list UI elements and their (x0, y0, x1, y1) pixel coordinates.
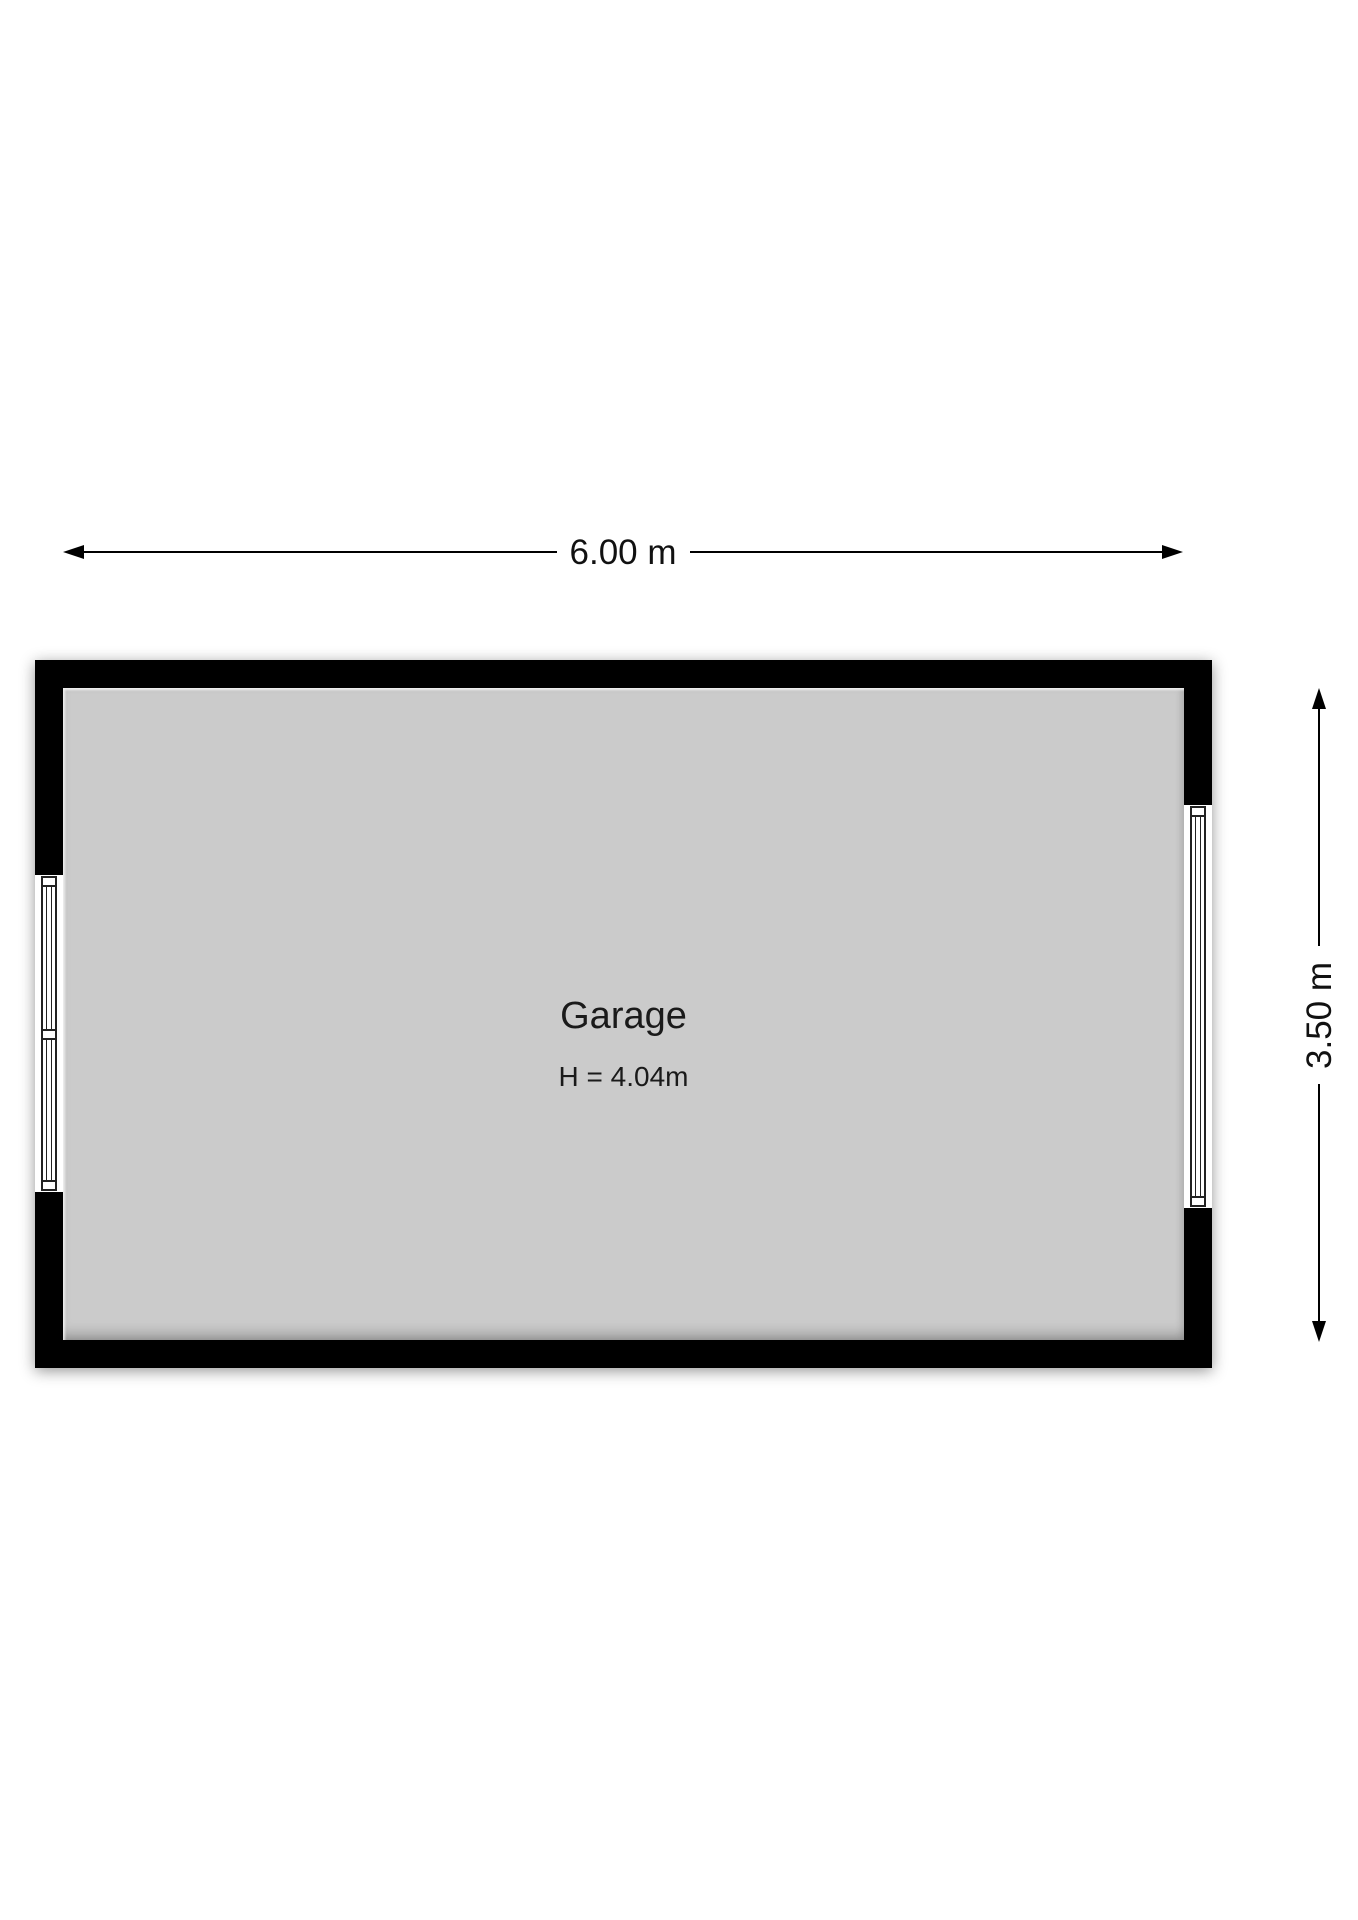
window-frame-box (41, 876, 57, 887)
dimension-line-segment (84, 551, 557, 553)
arrow-right-icon (1162, 545, 1183, 559)
width-dimension: 6.00 m (63, 536, 1183, 568)
arrow-up-icon (1312, 688, 1326, 709)
arrow-left-icon (63, 545, 84, 559)
right-window (1184, 805, 1212, 1208)
height-dimension: 3.50 m (1303, 688, 1335, 1342)
room-label-block: Garage H = 4.04m (63, 994, 1184, 1094)
window-frame-box (1190, 1196, 1206, 1207)
window-frame-box (41, 1180, 57, 1191)
left-window (35, 875, 63, 1192)
window-frame (41, 875, 57, 1192)
width-dimension-label: 6.00 m (557, 535, 690, 570)
window-glass-lines (1190, 808, 1206, 1205)
height-dimension-label: 3.50 m (1302, 962, 1337, 1069)
arrow-down-icon (1312, 1321, 1326, 1342)
window-frame (1190, 805, 1206, 1208)
room-name-label: Garage (560, 994, 687, 1038)
window-frame-box (41, 1029, 57, 1040)
floorplan-canvas: 6.00 m Garage H = 4.04m (0, 0, 1358, 1920)
room-height-label: H = 4.04m (559, 1060, 689, 1094)
dimension-line-segment (1318, 1084, 1320, 1321)
window-frame-box (1190, 806, 1206, 817)
height-dimension-label-wrap: 3.50 m (1303, 946, 1335, 1084)
dimension-line-segment (690, 551, 1163, 553)
dimension-line-segment (1318, 709, 1320, 946)
garage-room: Garage H = 4.04m (35, 660, 1212, 1368)
